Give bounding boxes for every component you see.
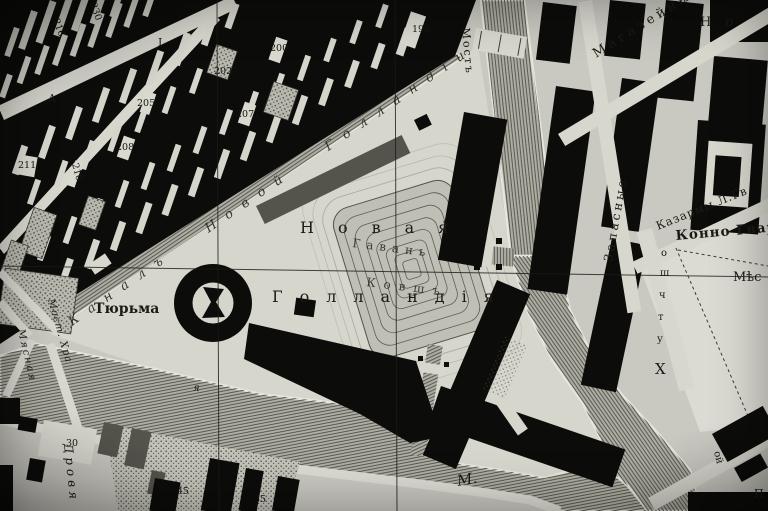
label-block-letter-a: А [48,92,57,105]
number-30: 30 [66,438,78,449]
label-island-word1: Новая [300,218,472,237]
svg-text:ч: ч [659,290,666,301]
label-letter-ya: я [193,383,200,394]
label-block-letter-i: І [158,36,162,49]
label-moika-initial: М. [455,469,479,490]
svg-text:т: т [658,312,664,323]
label-mesto-fragment: Мѣс [733,270,761,285]
map-viewport: Каналъ Новой Голландіи Новая Голландія Г… [0,0,768,511]
number-45: 45 [177,486,189,497]
number-208: 208 [116,142,134,153]
number-207: 207 [236,109,254,120]
circular-prison-building [174,264,252,342]
historic-map-canvas: Каналъ Новой Голландіи Новая Голландія Г… [0,0,768,511]
svg-text:ш: ш [660,268,670,279]
svg-text:у: у [657,334,663,345]
label-prison: Тюрьма [94,301,159,317]
number-196: 196 [412,24,430,35]
number-205: 205 [137,98,155,109]
svg-text:Х: Х [655,360,666,378]
number-202: 202 [214,66,232,77]
number-35: 35 [254,494,266,505]
number-211: 211 [18,160,36,171]
number-200: 200 [270,43,288,54]
label-no-fragment: Но [700,15,747,30]
svg-text:о: о [661,248,667,259]
label-se-letter-p: П [754,487,764,500]
